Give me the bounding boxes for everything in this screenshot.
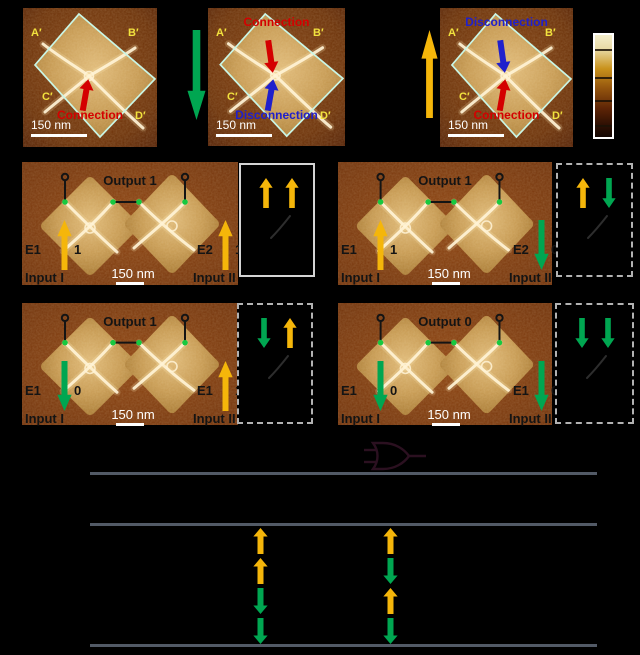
domain-wall-trace xyxy=(585,212,613,242)
domain-wall-trace xyxy=(266,352,294,382)
input-arrow-icon xyxy=(218,220,233,270)
mfm-box-2 xyxy=(556,163,633,277)
input-i-label: Input I xyxy=(25,411,64,426)
input-ii-label: Input II xyxy=(509,411,552,426)
scale-bar xyxy=(432,282,460,285)
output-label: Output 1 xyxy=(338,173,552,188)
input-ii-label: Input II xyxy=(193,270,236,285)
scale-label: 150 nm xyxy=(422,408,476,422)
output-label: Output 1 xyxy=(22,173,238,188)
mfm-box-3 xyxy=(237,303,313,424)
corner-label-a: A′ xyxy=(448,28,459,39)
magnetization-arrow-icon xyxy=(257,318,271,348)
scale-label: 150 nm xyxy=(422,267,476,281)
colorbar-tick xyxy=(595,49,612,51)
scale-label: 150 nm xyxy=(448,119,488,132)
corner-label-c: C′ xyxy=(42,92,53,103)
input-bit: 1 xyxy=(390,242,397,257)
corner-label-a: A′ xyxy=(31,28,42,39)
scale-label: 150 nm xyxy=(216,119,256,132)
electrode-label-e1: E1 xyxy=(25,242,41,257)
table-divider-line xyxy=(90,472,597,475)
afm-image-3: A′ B′ C′ D′ Disconnection Connection 150… xyxy=(440,8,573,147)
input-arrow-icon xyxy=(373,220,388,270)
height-colorbar xyxy=(593,33,614,139)
afm-image-2: A′ B′ C′ D′ Connection Disconnection 150… xyxy=(208,8,345,146)
table-divider-line xyxy=(90,523,597,526)
yellow-up-arrow-icon xyxy=(421,30,438,118)
magnetization-arrow-icon xyxy=(602,178,616,208)
colorbar-tick xyxy=(595,100,612,102)
electrode-label-e2: E2 xyxy=(513,242,529,257)
magnetization-arrow-icon xyxy=(601,318,615,348)
truth-arrow-icon xyxy=(253,528,268,554)
scale-label: 150 nm xyxy=(31,119,71,132)
output-label: Output 0 xyxy=(338,314,552,329)
colorbar-tick xyxy=(595,125,612,127)
connection-annotation: Connection xyxy=(208,16,345,28)
disconnection-annotation: Disconnection xyxy=(440,16,573,28)
magnetization-arrow-icon xyxy=(285,178,299,208)
input-arrow-icon xyxy=(57,361,72,411)
truth-arrow-icon xyxy=(383,558,398,584)
electrode-label-e1-right: E1 xyxy=(197,383,213,398)
or-gate-icon xyxy=(362,440,428,473)
input-bit: 0 xyxy=(390,383,397,398)
mfm-box-4 xyxy=(555,303,634,424)
corner-label-b: B′ xyxy=(545,28,556,39)
input-i-label: Input I xyxy=(341,411,380,426)
input-arrow-icon xyxy=(57,220,72,270)
scale-bar xyxy=(216,134,272,137)
input-bit: 1 xyxy=(74,242,81,257)
corner-label-b: B′ xyxy=(128,28,139,39)
magnetization-arrow-icon xyxy=(575,318,589,348)
electrode-label-e1: E1 xyxy=(341,242,357,257)
scale-label: 150 nm xyxy=(106,267,160,281)
truth-arrow-icon xyxy=(253,618,268,644)
input-ii-label: Input II xyxy=(509,270,552,285)
gate-panel-4: Output 0 E1 0 E1 0 Input I Input II 150 … xyxy=(338,303,552,425)
truth-arrow-icon xyxy=(253,588,268,614)
scale-bar xyxy=(432,423,460,426)
table-divider-line xyxy=(90,644,597,647)
truth-arrow-icon xyxy=(253,558,268,584)
input-arrow-icon xyxy=(373,361,388,411)
input-bit: 0 xyxy=(74,383,81,398)
scale-bar xyxy=(116,423,144,426)
input-i-label: Input I xyxy=(25,270,64,285)
magnetization-arrow-icon xyxy=(259,178,273,208)
scale-bar xyxy=(31,134,87,137)
electrode-label-e1-right: E1 xyxy=(513,383,529,398)
mfm-box-1 xyxy=(239,163,315,277)
truth-arrow-icon xyxy=(383,528,398,554)
scale-bar xyxy=(116,282,144,285)
truth-arrow-icon xyxy=(383,618,398,644)
corner-label-a: A′ xyxy=(216,28,227,39)
input-arrow-icon xyxy=(534,220,549,270)
magnetization-arrow-icon xyxy=(576,178,590,208)
corner-label-c: C′ xyxy=(227,92,238,103)
gate-panel-2: Output 1 E1 1 E2 0 Input I Input II 150 … xyxy=(338,162,552,285)
truth-arrow-icon xyxy=(383,588,398,614)
figure-root: A′ B′ C′ D′ Connection 150 nm A′ B′ C′ D… xyxy=(0,0,640,655)
electrode-label-e1: E1 xyxy=(25,383,41,398)
colorbar-tick xyxy=(595,77,612,79)
output-label: Output 1 xyxy=(22,314,238,329)
input-ii-label: Input II xyxy=(193,411,236,426)
magnetization-arrow-icon xyxy=(283,318,297,348)
input-i-label: Input I xyxy=(341,270,380,285)
afm-image-1: A′ B′ C′ D′ Connection 150 nm xyxy=(23,8,157,147)
gate-panel-1: Output 1 E1 1 E2 1 Input I Input II 150 … xyxy=(22,162,238,285)
domain-wall-trace xyxy=(584,352,612,382)
corner-label-b: B′ xyxy=(313,28,324,39)
electrode-label-e2: E2 xyxy=(197,242,213,257)
input-arrow-icon xyxy=(218,361,233,411)
domain-wall-trace xyxy=(268,212,296,242)
corner-label-c: C′ xyxy=(459,92,470,103)
input-arrow-icon xyxy=(534,361,549,411)
scale-bar xyxy=(448,134,504,137)
electrode-label-e1: E1 xyxy=(341,383,357,398)
gate-panel-3: Output 1 E1 0 E1 1 Input I Input II 150 … xyxy=(22,303,238,425)
green-down-arrow-icon xyxy=(187,30,206,120)
scale-label: 150 nm xyxy=(106,408,160,422)
